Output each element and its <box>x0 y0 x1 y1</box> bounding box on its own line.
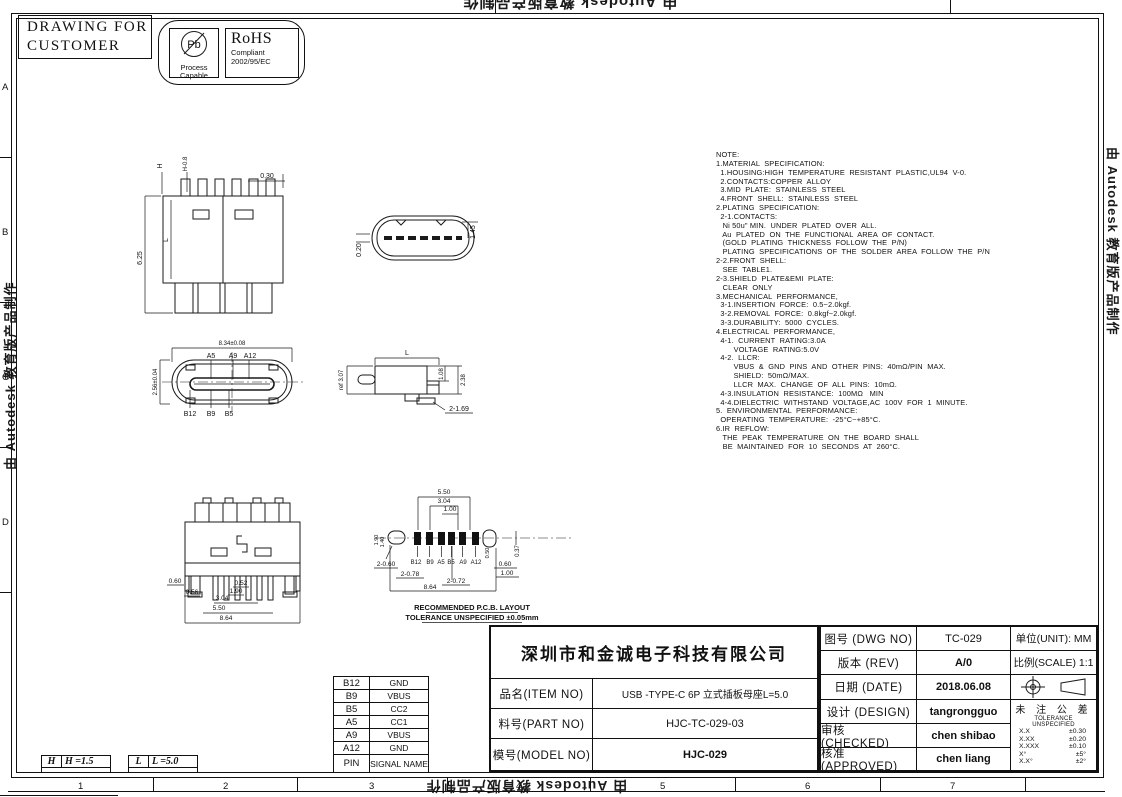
dim-label: 1.00 <box>444 506 457 513</box>
view-front-legs: 0.60 0.52 0.56 1.90 3.04 5.50 8.64 <box>165 492 320 632</box>
item-no-label: 品名(ITEM NO) <box>491 679 593 709</box>
approved-label: 核准 (APPROVED) <box>821 748 917 771</box>
dwg-no-label: 图号 (DWG NO) <box>821 627 917 651</box>
dim-label: 8.34±0.08 <box>219 341 246 347</box>
dim-label: 1.90 <box>230 588 243 595</box>
zone-tick-left <box>0 447 11 448</box>
pin-callout: B5 <box>225 411 234 418</box>
title-block-right: 图号 (DWG NO) TC-029 单位(UNIT): MM 版本 (REV)… <box>819 625 1099 773</box>
design-label: 设计 (DESIGN) <box>821 700 917 724</box>
view-plug-face: 0.20 1.45 <box>352 196 487 276</box>
dim-label: 1.00 <box>501 570 514 577</box>
dim-label: 2.56±0.04 <box>153 368 159 395</box>
pin-cell: B5 <box>334 703 370 716</box>
signal-cell: CC1 <box>370 716 428 729</box>
zone-number: 7 <box>950 781 955 792</box>
h-key: H <box>42 756 62 768</box>
dim-label: 5.50 <box>213 605 226 612</box>
certification-capsule: Pb Process Capable RoHS Compliant 2002/9… <box>158 20 305 85</box>
dim-label: 0.56 <box>186 589 199 596</box>
third-angle-projection-icon <box>1015 676 1093 698</box>
pb-free-icon: Pb <box>170 29 218 59</box>
pin-callout: A5 <box>207 353 216 360</box>
checked-label: 审核 (CHECKED) <box>821 724 917 748</box>
pin-callout: A9 <box>229 353 238 360</box>
view-side: L 1.08 2.38 ref 3.07 2-1.69 <box>335 338 485 428</box>
dim-label: 5.50 <box>438 489 451 496</box>
drawing-sheet: 由 Autodesk 教育版产品制作 由 Autodesk 教育版产品制作 由 … <box>0 0 1122 797</box>
zone-number: 2 <box>223 781 228 792</box>
stamp-line1: DRAWING FOR <box>27 18 151 37</box>
l-key: L <box>129 756 149 768</box>
dim-label: 2-0.78 <box>401 571 420 578</box>
l-value: L =5.0 <box>149 756 197 768</box>
l-option-box: L L =5.0 <box>128 755 198 773</box>
tolerance-subtitle: TOLERANCE UNSPECIFIED <box>1013 716 1094 728</box>
dim-label: 1.40 <box>380 537 386 548</box>
pad-label: A9 <box>459 560 467 566</box>
pin-signal-table: B12GND B9VBUS B5CC2 A5CC1 A9VBUS A12GND … <box>333 676 429 773</box>
view-pcb-layout: 5.50 3.04 1.00 B12 B9 A5 B5 A9 A12 1.90 … <box>372 483 577 628</box>
dim-label: 3.04 <box>216 595 229 602</box>
ruler-line <box>8 791 1105 792</box>
pin-cell: PIN <box>334 755 370 772</box>
dim-label: 6.25 <box>137 251 144 265</box>
zone-tick <box>447 778 448 791</box>
signal-cell: GND <box>370 677 428 690</box>
company-name: 深圳市和金诚电子科技有限公司 <box>491 627 818 679</box>
notes-block: NOTE: 1.MATERIAL SPECIFICATION: 1.HOUSIN… <box>716 151 1102 452</box>
pin-cell: B12 <box>334 677 370 690</box>
dim-label: 1.08 <box>439 368 445 380</box>
watermark-right: 由 Autodesk 教育版产品制作 <box>1107 147 1122 337</box>
signal-cell: GND <box>370 742 428 755</box>
dwg-no-value: TC-029 <box>917 627 1011 651</box>
signal-cell: VBUS <box>370 690 428 703</box>
stamp-line2: CUSTOMER <box>27 37 151 56</box>
date-label: 日期 (DATE) <box>821 675 917 700</box>
checked-value: chen shibao <box>917 724 1011 748</box>
view-front-elevation: H H-0.8 0.30 6.25 L <box>135 148 295 323</box>
pad-label: B5 <box>447 560 455 566</box>
zone-tick <box>153 778 154 791</box>
dim-label: 0.50 <box>485 548 491 559</box>
dim-label: 0.60 <box>169 578 182 585</box>
dim-label: 3.04 <box>438 498 451 505</box>
rohs-text1: Compliant <box>231 48 298 57</box>
dim-label: 0.60 <box>499 561 512 568</box>
title-block-left: 深圳市和金诚电子科技有限公司 品名(ITEM NO) USB -TYPE-C 6… <box>489 625 820 773</box>
pcb-caption-2: TOLERANCE UNSPECIFIED ±0.05mm <box>405 613 539 622</box>
zone-letter: C <box>2 372 9 383</box>
zone-tick-left <box>0 592 11 593</box>
zone-tick <box>297 778 298 791</box>
zone-tick-left <box>0 157 11 158</box>
date-value: 2018.06.08 <box>917 675 1011 700</box>
dim-label: L <box>163 238 170 242</box>
dim-label: 2-0.72 <box>447 578 466 585</box>
dim-label: 0.20 <box>356 243 363 257</box>
zone-number: 5 <box>660 781 665 792</box>
zone-letter: B <box>2 227 8 238</box>
zone-tick <box>590 778 591 791</box>
tol-key: X.X <box>1019 728 1030 736</box>
tol-val: ±0.20 <box>1069 736 1086 744</box>
dim-label: L <box>405 350 409 357</box>
dim-label: 8.64 <box>220 615 233 622</box>
tol-key: X.XX <box>1019 736 1035 744</box>
tol-val: ±2° <box>1076 758 1086 766</box>
signal-cell: CC2 <box>370 703 428 716</box>
pin-callout: B12 <box>184 411 197 418</box>
part-no-value: HJC-TC-029-03 <box>593 709 818 739</box>
drawing-for-customer-stamp: DRAWING FOR CUSTOMER <box>18 15 152 59</box>
dim-label: ref 3.07 <box>339 369 345 390</box>
pin-cell: B9 <box>334 690 370 703</box>
rohs-mark: RoHS Compliant 2002/95/EC <box>225 28 299 78</box>
zone-tick-left <box>0 302 11 303</box>
tol-val: ±0.30 <box>1069 728 1086 736</box>
view-receptacle-face: 8.34±0.08 A5 A9 A12 B12 B9 B5 2.56±0.04 <box>150 332 315 422</box>
signal-cell: SIGNAL NAME <box>370 755 428 772</box>
approved-value: chen liang <box>917 748 1011 771</box>
zone-tick <box>1025 778 1026 791</box>
dim-label: 0.37 <box>515 545 521 557</box>
dim-label: 2-0.60 <box>377 561 396 568</box>
pad-label: B9 <box>426 560 434 566</box>
dim-label: 8.64 <box>424 584 437 591</box>
pad-label: B12 <box>411 560 422 566</box>
tol-key: X.X° <box>1019 758 1033 766</box>
model-no-value: HJC-029 <box>593 739 818 771</box>
zone-number: 6 <box>805 781 810 792</box>
pin-cell: A12 <box>334 742 370 755</box>
scale-label: 比例(SCALE) 1:1 <box>1011 651 1097 675</box>
tol-key: X.XXX <box>1019 743 1039 751</box>
tol-val: ±0.10 <box>1069 743 1086 751</box>
zone-number: 4 <box>516 781 521 792</box>
zone-number: 1 <box>78 781 83 792</box>
zone-tick-top <box>950 0 951 13</box>
dim-label: 1.45 <box>470 225 477 239</box>
dim-label: 2.38 <box>461 374 467 386</box>
tolerance-block: 未 注 公 差 TOLERANCE UNSPECIFIED X.X±0.30 X… <box>1011 700 1097 771</box>
pin-cell: A5 <box>334 716 370 729</box>
pin-cell: A9 <box>334 729 370 742</box>
rohs-text2: 2002/95/EC <box>231 57 298 66</box>
rev-label: 版本 (REV) <box>821 651 917 675</box>
pb-symbol: Pb <box>187 39 200 51</box>
pb-text2: Capable <box>170 72 218 80</box>
design-value: tangrongguo <box>917 700 1011 724</box>
item-no-value: USB -TYPE-C 6P 立式插板母座L=5.0 <box>593 679 818 709</box>
dim-label: 2-1.69 <box>449 406 469 413</box>
signal-cell: VBUS <box>370 729 428 742</box>
tolerance-title: 未 注 公 差 <box>1013 701 1094 716</box>
h-option-box: H H =1.5 <box>41 755 111 773</box>
zone-number: 3 <box>369 781 374 792</box>
model-no-label: 模号(MODEL NO) <box>491 739 593 771</box>
zone-letter: D <box>2 517 9 528</box>
dim-label: 0.52 <box>235 580 248 587</box>
dim-label: H-0.8 <box>183 156 189 171</box>
unit-label: 单位(UNIT): MM <box>1011 627 1097 651</box>
pin-callout: A12 <box>244 353 257 360</box>
part-no-label: 料号(PART NO) <box>491 709 593 739</box>
pad-label: A5 <box>437 560 445 566</box>
ruler-line-corner <box>0 795 118 796</box>
zone-tick <box>735 778 736 791</box>
dim-label: H <box>157 163 164 168</box>
pcb-caption-1: RECOMMENDED P.C.B. LAYOUT <box>414 603 530 612</box>
h-value: H =1.5 <box>62 756 110 768</box>
zone-tick-top <box>495 0 496 13</box>
watermark-top: 由 Autodesk 教育版产品制作 <box>400 0 740 13</box>
pb-free-mark: Pb Process Capable <box>169 28 219 78</box>
zone-tick <box>880 778 881 791</box>
projection-symbol-cell <box>1011 675 1097 700</box>
rev-value: A/0 <box>917 651 1011 675</box>
zone-letter: A <box>2 82 8 93</box>
watermark-bottom: 由 Autodesk 教育版产品制作 <box>424 776 629 796</box>
pin-callout: B9 <box>207 411 216 418</box>
rohs-title: RoHS <box>231 30 298 48</box>
pad-label: A12 <box>471 560 482 566</box>
